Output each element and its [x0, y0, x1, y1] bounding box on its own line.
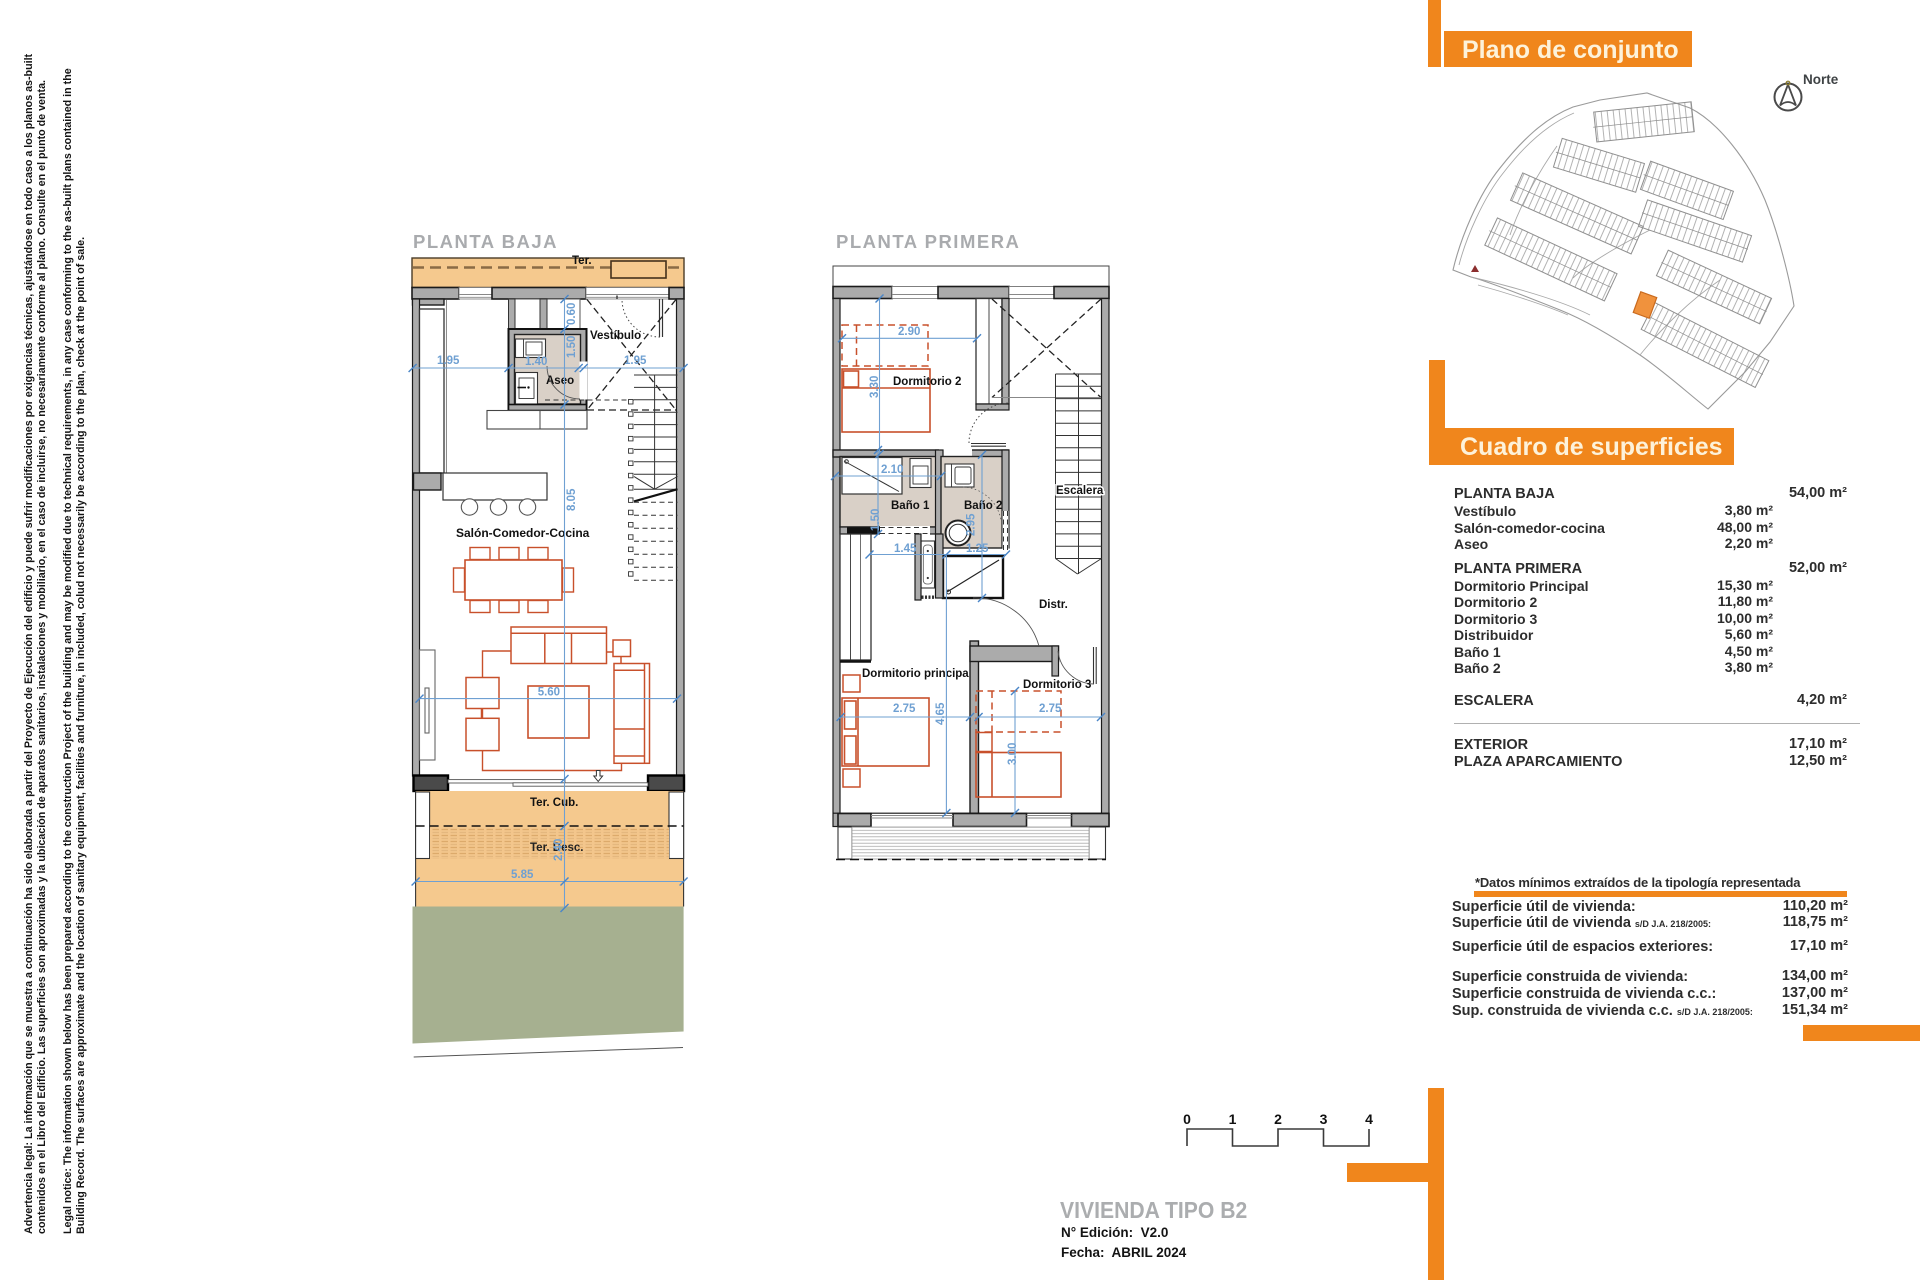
svg-text:1.95: 1.95: [437, 355, 460, 367]
svg-text:2.40: 2.40: [553, 839, 565, 861]
svg-text:8.05: 8.05: [566, 488, 578, 511]
svg-text:1.40: 1.40: [525, 356, 547, 368]
svg-text:Ter.: Ter.: [572, 255, 592, 267]
svg-text:1: 1: [1229, 1111, 1237, 1127]
svg-text:Baño 1: Baño 1: [891, 500, 930, 512]
svg-text:Dormitorio principal: Dormitorio principal: [862, 668, 972, 680]
svg-text:2.75: 2.75: [893, 703, 916, 715]
svg-text:3.00: 3.00: [1007, 743, 1019, 765]
svg-text:2.90: 2.90: [898, 326, 920, 338]
svg-text:3.30: 3.30: [869, 376, 881, 398]
svg-text:1.25: 1.25: [966, 543, 989, 555]
svg-text:Distr.: Distr.: [1039, 599, 1068, 611]
svg-text:2: 2: [1274, 1111, 1282, 1127]
svg-text:2.75: 2.75: [1039, 703, 1062, 715]
svg-text:1.50: 1.50: [870, 509, 882, 531]
svg-text:1.95: 1.95: [624, 355, 647, 367]
svg-text:4: 4: [1365, 1111, 1373, 1127]
svg-text:4.65: 4.65: [935, 702, 947, 725]
svg-text:5.60: 5.60: [538, 687, 560, 699]
svg-text:Dormitorio 3: Dormitorio 3: [1023, 679, 1091, 691]
svg-text:Baño 2: Baño 2: [964, 500, 1002, 512]
svg-text:2.95: 2.95: [966, 513, 978, 536]
svg-text:1.45: 1.45: [894, 543, 917, 555]
svg-text:2.10: 2.10: [881, 464, 903, 476]
svg-text:0: 0: [1183, 1111, 1191, 1127]
svg-text:3: 3: [1320, 1111, 1328, 1127]
svg-text:Ter. Cub.: Ter. Cub.: [530, 797, 578, 809]
svg-text:Norte: Norte: [1803, 72, 1839, 87]
svg-text:5.85: 5.85: [511, 869, 534, 881]
svg-text:Vestíbulo: Vestíbulo: [590, 330, 641, 342]
svg-text:Dormitorio 2: Dormitorio 2: [893, 376, 961, 388]
svg-text:0.60: 0.60: [566, 303, 578, 325]
svg-text:1.50: 1.50: [566, 336, 578, 358]
svg-text:Salón-Comedor-Cocina: Salón-Comedor-Cocina: [456, 526, 590, 540]
svg-text:Escalera: Escalera: [1056, 485, 1104, 497]
